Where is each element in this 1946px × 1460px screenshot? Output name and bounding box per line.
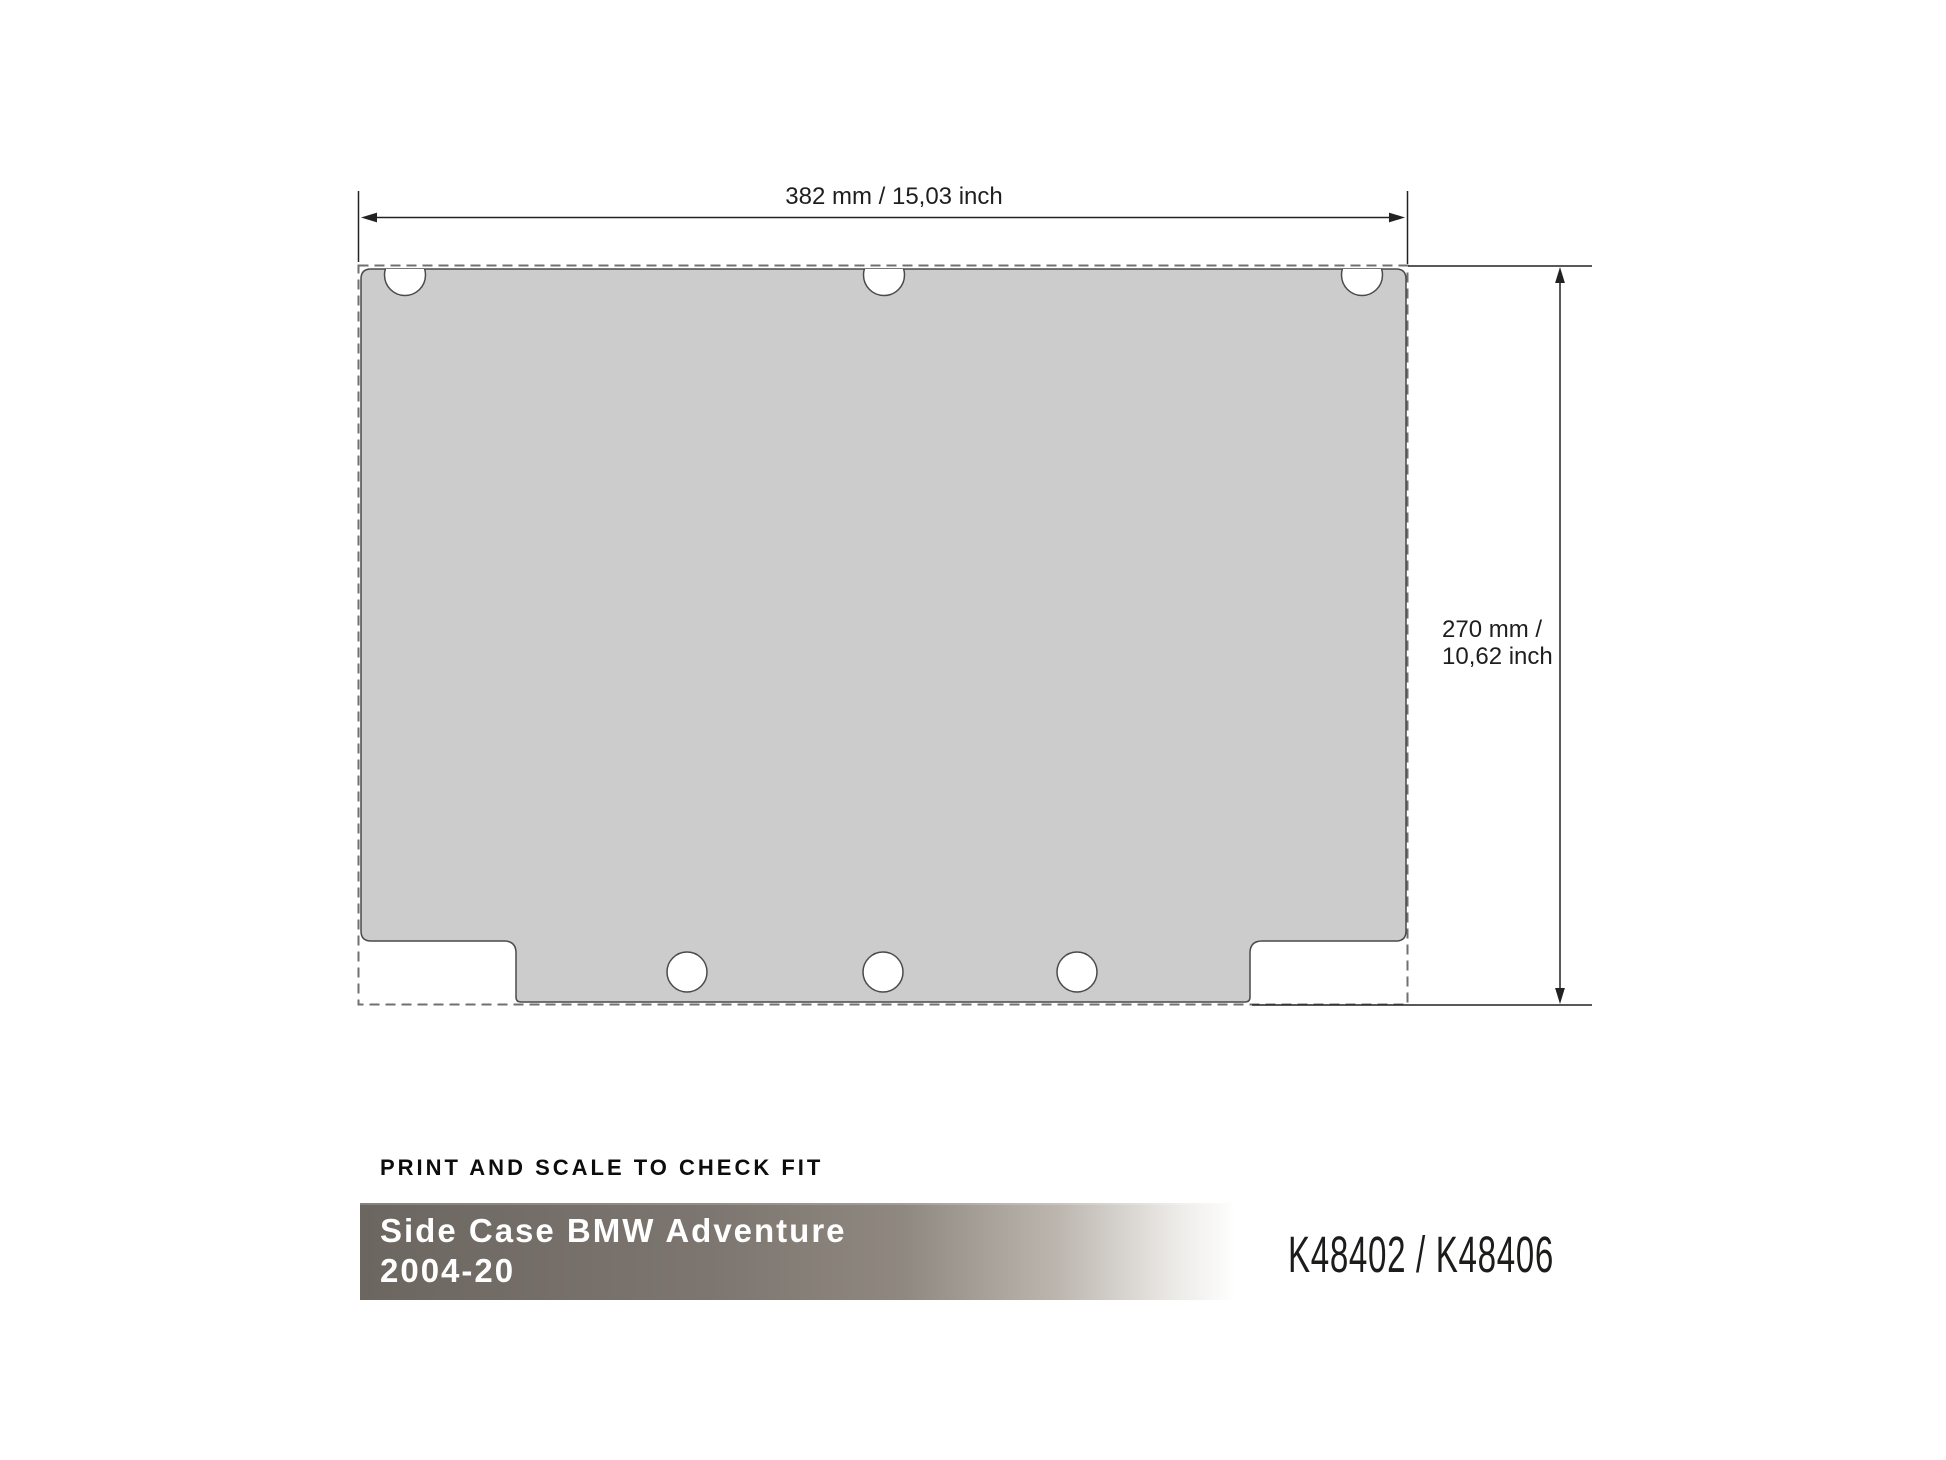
product-banner: Side Case BMW Adventure 2004-20 (360, 1203, 1236, 1300)
top-notch-hole (1342, 255, 1383, 296)
top-notch-hole (864, 255, 905, 296)
height-dimension-label-line1: 270 mm / (1442, 616, 1542, 643)
banner-title-line2: 2004-20 (380, 1251, 1236, 1291)
arrowhead-left-icon (361, 213, 377, 223)
arrowhead-right-icon (1389, 213, 1405, 223)
arrowhead-up-icon (1555, 267, 1565, 283)
top-notch-hole (385, 255, 426, 296)
product-codes: K48402 / K48406 (1288, 1229, 1554, 1280)
template-shape (361, 269, 1406, 1002)
banner-title-line1: Side Case BMW Adventure (380, 1211, 1236, 1251)
bottom-mounting-hole (863, 952, 903, 992)
template-page: 382 mm / 15,03 inch 270 mm / 10,62 inch … (0, 0, 1946, 1460)
arrowhead-down-icon (1555, 988, 1565, 1004)
print-instruction: PRINT AND SCALE TO CHECK FIT (380, 1155, 823, 1181)
bottom-mounting-hole (667, 952, 707, 992)
height-dimension-label-line2: 10,62 inch (1442, 643, 1553, 670)
banner-title: Side Case BMW Adventure 2004-20 (360, 1203, 1236, 1291)
bottom-mounting-hole (1057, 952, 1097, 992)
width-dimension-label: 382 mm / 15,03 inch (785, 183, 1002, 210)
